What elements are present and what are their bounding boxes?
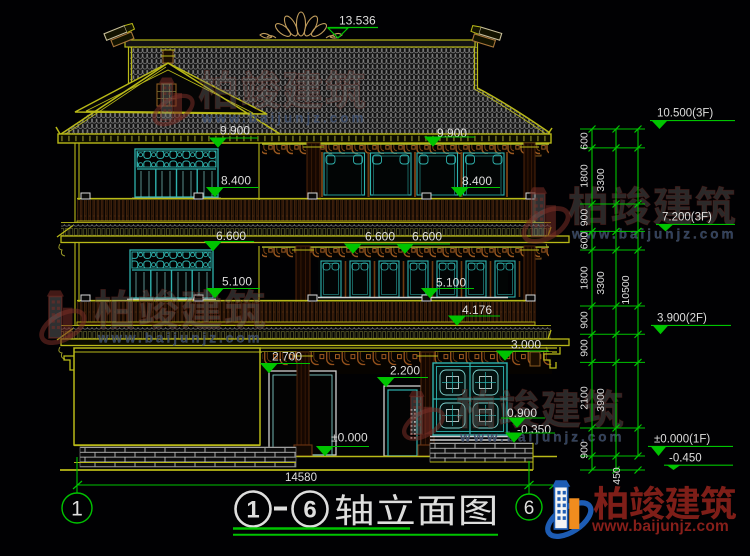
svg-text:-0.350: -0.350 [517,423,551,437]
svg-text:www.baijunjz.com: www.baijunjz.com [571,227,737,242]
svg-text:7.200(3F): 7.200(3F) [662,212,712,224]
svg-text:8.400: 8.400 [221,174,251,188]
svg-text:900: 900 [579,209,591,227]
svg-text:-0.450: -0.450 [669,453,702,465]
svg-text:3900: 3900 [595,388,607,412]
svg-text:www.baijunjz.com: www.baijunjz.com [97,331,263,346]
svg-text:3300: 3300 [595,271,607,295]
svg-text:900: 900 [579,441,591,459]
svg-text:450: 450 [611,467,623,485]
svg-text:9.900: 9.900 [220,124,250,138]
svg-text:10.500(3F): 10.500(3F) [657,108,713,120]
svg-text:3.900(2F): 3.900(2F) [657,313,707,325]
svg-text:1: 1 [71,498,83,521]
svg-text:6.600: 6.600 [412,230,442,244]
svg-text:6.600: 6.600 [216,229,246,243]
svg-text:5.100: 5.100 [222,275,252,289]
svg-text:±0.000(1F): ±0.000(1F) [654,434,710,446]
svg-text:4.176: 4.176 [462,303,492,317]
svg-text:600: 600 [579,232,591,250]
svg-text:900: 900 [579,339,591,357]
svg-text:1800: 1800 [579,164,591,188]
svg-text:3.000: 3.000 [511,338,541,352]
svg-text:14580: 14580 [285,472,317,484]
svg-text:10500: 10500 [620,275,632,304]
svg-text:3300: 3300 [595,168,607,192]
svg-text:13.536: 13.536 [339,14,376,28]
svg-text:2.200: 2.200 [390,364,420,378]
svg-text:www.baijunjz.com: www.baijunjz.com [591,518,729,535]
svg-text:900: 900 [579,311,591,329]
svg-text:1: 1 [246,497,259,524]
svg-text:2100: 2100 [579,386,591,410]
svg-text:600: 600 [579,132,591,150]
svg-text:6: 6 [524,498,535,519]
svg-text:9.900: 9.900 [437,126,467,140]
svg-text:1800: 1800 [579,266,591,290]
svg-text:8.400: 8.400 [462,174,492,188]
svg-text:2.700: 2.700 [272,350,302,364]
svg-text:6.600: 6.600 [365,230,395,244]
svg-text:6: 6 [303,497,316,524]
svg-text:±0.000: ±0.000 [331,431,368,445]
svg-text:5.100: 5.100 [436,276,466,290]
